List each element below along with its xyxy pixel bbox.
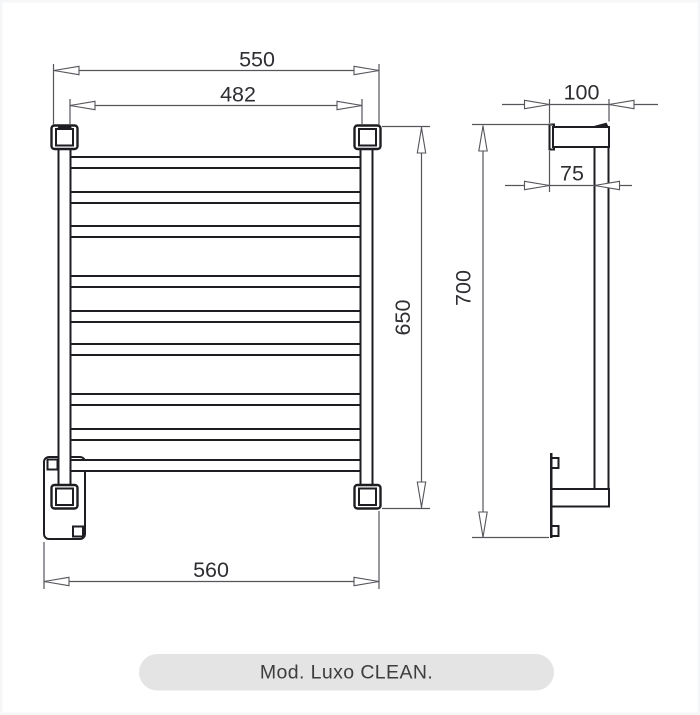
wall-clip: [552, 526, 559, 536]
arrowhead-right: [525, 100, 550, 108]
arrowhead-left: [54, 66, 79, 74]
arrowhead-right: [354, 66, 379, 74]
dimension-550: 550: [54, 48, 380, 126]
bracket-highlight: [591, 123, 609, 127]
arrowhead-down: [479, 512, 487, 537]
arrowhead-left: [70, 101, 95, 109]
left-post: [59, 148, 71, 486]
cap-top-right-inner: [359, 129, 376, 146]
dimension-value: 100: [564, 81, 600, 105]
front-rungs: [68, 157, 363, 471]
extension-line: [54, 64, 380, 125]
dimension-value: 75: [560, 162, 584, 186]
arrowhead-right: [354, 577, 379, 585]
arrowhead-left: [44, 577, 69, 585]
wall-clip: [552, 458, 559, 468]
dimension-560: 560: [44, 511, 379, 589]
model-label: Mod. Luxo CLEAN.: [139, 654, 554, 691]
cap-bottom-left-inner: [56, 489, 73, 506]
rung: [68, 429, 363, 440]
right-post: [361, 148, 373, 486]
rung: [68, 311, 363, 322]
cap-bottom-right-inner: [359, 489, 376, 506]
arrowhead-up: [479, 126, 487, 151]
cap-top-left-inner: [56, 129, 73, 146]
dimension-value: 700: [452, 270, 476, 306]
rung: [68, 344, 363, 355]
rung: [68, 157, 363, 168]
drawing-canvas: 550 482 650 560: [0, 0, 700, 715]
dimension-100: 100: [502, 81, 658, 124]
rung: [68, 226, 363, 237]
arrowhead-right: [525, 181, 550, 189]
mounting-screw-hole: [73, 527, 83, 537]
rung: [68, 394, 363, 405]
towel-rail-technical-drawing: 550 482 650 560: [2, 2, 698, 713]
dimension-value: 560: [193, 558, 229, 582]
cap-highlight: [57, 125, 72, 129]
dimension-482: 482: [70, 83, 362, 125]
side-post: [595, 146, 609, 490]
bottom-bracket-arm: [552, 489, 610, 507]
rung: [68, 192, 363, 203]
rung: [68, 460, 363, 471]
dimension-value: 650: [391, 300, 415, 336]
dimension-value: 482: [220, 83, 256, 107]
rung: [68, 276, 363, 287]
arrowhead-right: [337, 101, 362, 109]
dimension-650: 650: [382, 127, 430, 509]
extension-line: [70, 99, 362, 124]
dimension-75: 75: [505, 151, 632, 192]
side-view: 100 75 700: [452, 81, 659, 539]
model-label-text: Mod. Luxo CLEAN.: [260, 662, 433, 684]
arrowhead-left: [609, 100, 634, 108]
top-bracket-arm: [553, 127, 609, 147]
arrowhead-down: [417, 482, 425, 507]
front-view: 550 482 650 560: [44, 48, 430, 590]
arrowhead-up: [417, 128, 425, 153]
mounting-screw-hole: [48, 460, 58, 470]
dimension-value: 550: [239, 48, 275, 72]
